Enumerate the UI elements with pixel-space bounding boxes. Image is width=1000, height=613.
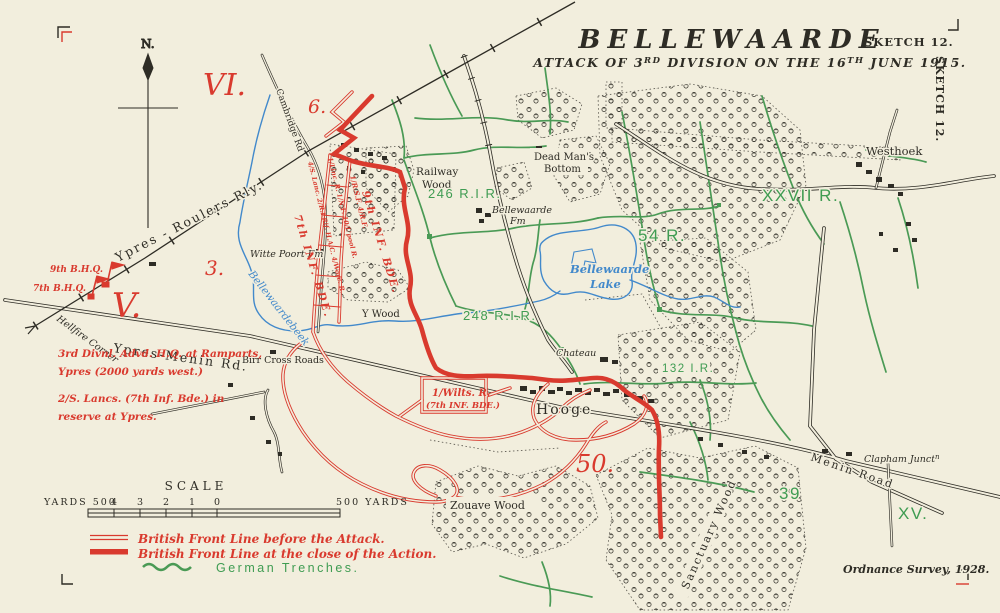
label-sector-3: 3. (205, 256, 224, 280)
hedge-strip-north (606, 82, 622, 128)
label-xv: XV. (898, 504, 928, 523)
label-sector-50: 50. (576, 450, 614, 478)
label-bellewaarde-fm-1: Bellewaarde (491, 205, 552, 216)
label-54-r: 54 R. (638, 226, 686, 245)
scale-right-label: 500 YARDS (336, 497, 409, 508)
label-dead-mans-1: Dead Man's (534, 152, 594, 163)
legend-label-german-trenches: German Trenches. (216, 561, 360, 575)
label-246-rir: 246 R.I.R. (428, 186, 502, 201)
label-sector-6: 6. (308, 96, 326, 118)
scale-tick-2: 2 (163, 497, 169, 508)
label-248-rir: 248 R.I.R. (463, 308, 537, 323)
label-lake-2: Lake (589, 277, 621, 291)
scale-tick-4: 4 (111, 497, 117, 508)
label-lake-1: Bellewaarde (569, 262, 649, 276)
scale-tick-3: 3 (137, 497, 143, 508)
side-sketch-number: SKETCH 12. (933, 56, 946, 142)
label-wilts-2: (7th INF. BDE.) (426, 400, 500, 411)
label-zouave-wood: Zouave Wood (450, 499, 525, 512)
label-ordnance-survey: Ordnance Survey, 1928. (843, 563, 989, 576)
label-railway-wood-1: Railway (416, 166, 458, 178)
label-note2-line1: 2/S. Lancs. (7th Inf. Bde.) in (57, 393, 224, 405)
label-note1-line2: Ypres (2000 yards west.) (58, 366, 203, 378)
map-subtitle: ATTACK OF 3RD DIVISION ON THE 16TH JUNE … (532, 55, 966, 70)
label-chateau: Chateau (556, 348, 596, 359)
label-xxvii-r: XXVII R. (762, 186, 839, 205)
legend-label-close-line: British Front Line at the close of the A… (137, 547, 436, 561)
sketch-number: SKETCH 12. (864, 35, 954, 49)
label-hooge: Hooge (536, 402, 592, 418)
scale-left-label: YARDS 500 (43, 497, 117, 508)
label-bellewaarde-fm-2: Fm (509, 216, 526, 227)
label-sector-v: V. (112, 286, 141, 326)
label-7th-bhq: 7th B.H.Q. (33, 284, 86, 294)
scale-tick-0: 0 (214, 497, 220, 508)
map-canvas: N. Ypres - Roulers Rly. Ypres-Menin Rd. … (0, 0, 1000, 613)
label-note2-line2: reserve at Ypres. (58, 411, 157, 423)
label-note1-line1: 3rd Divnl. Advd. H.Q. at Ramparts, (58, 348, 262, 360)
scale-title: SCALE (165, 479, 228, 493)
label-dead-mans-2: Bottom (544, 164, 581, 175)
sanctuary-wood-area (596, 446, 806, 610)
label-39: 39 (779, 484, 801, 503)
label-sector-vi: VI. (203, 68, 246, 103)
label-clapham-junction: Clapham Junctn (864, 453, 940, 465)
label-132-ir: 132 I.R. (662, 363, 714, 375)
label-9th-bhq: 9th B.H.Q. (50, 265, 103, 275)
map-title: BELLEWAARDE (577, 25, 885, 55)
legend-label-before-line: British Front Line before the Attack. (137, 532, 385, 546)
label-westhoek: Westhoek (866, 144, 923, 158)
legend-symbol-close-line (90, 549, 128, 555)
compass-north-label: N. (141, 37, 155, 51)
bellewaarde-sketch-map: N. Ypres - Roulers Rly. Ypres-Menin Rd. … (0, 0, 1000, 613)
scale-tick-1: 1 (189, 497, 195, 508)
label-y-wood: Y Wood (361, 309, 400, 320)
label-wilts-1: 1/Wilts. R. (432, 388, 490, 399)
